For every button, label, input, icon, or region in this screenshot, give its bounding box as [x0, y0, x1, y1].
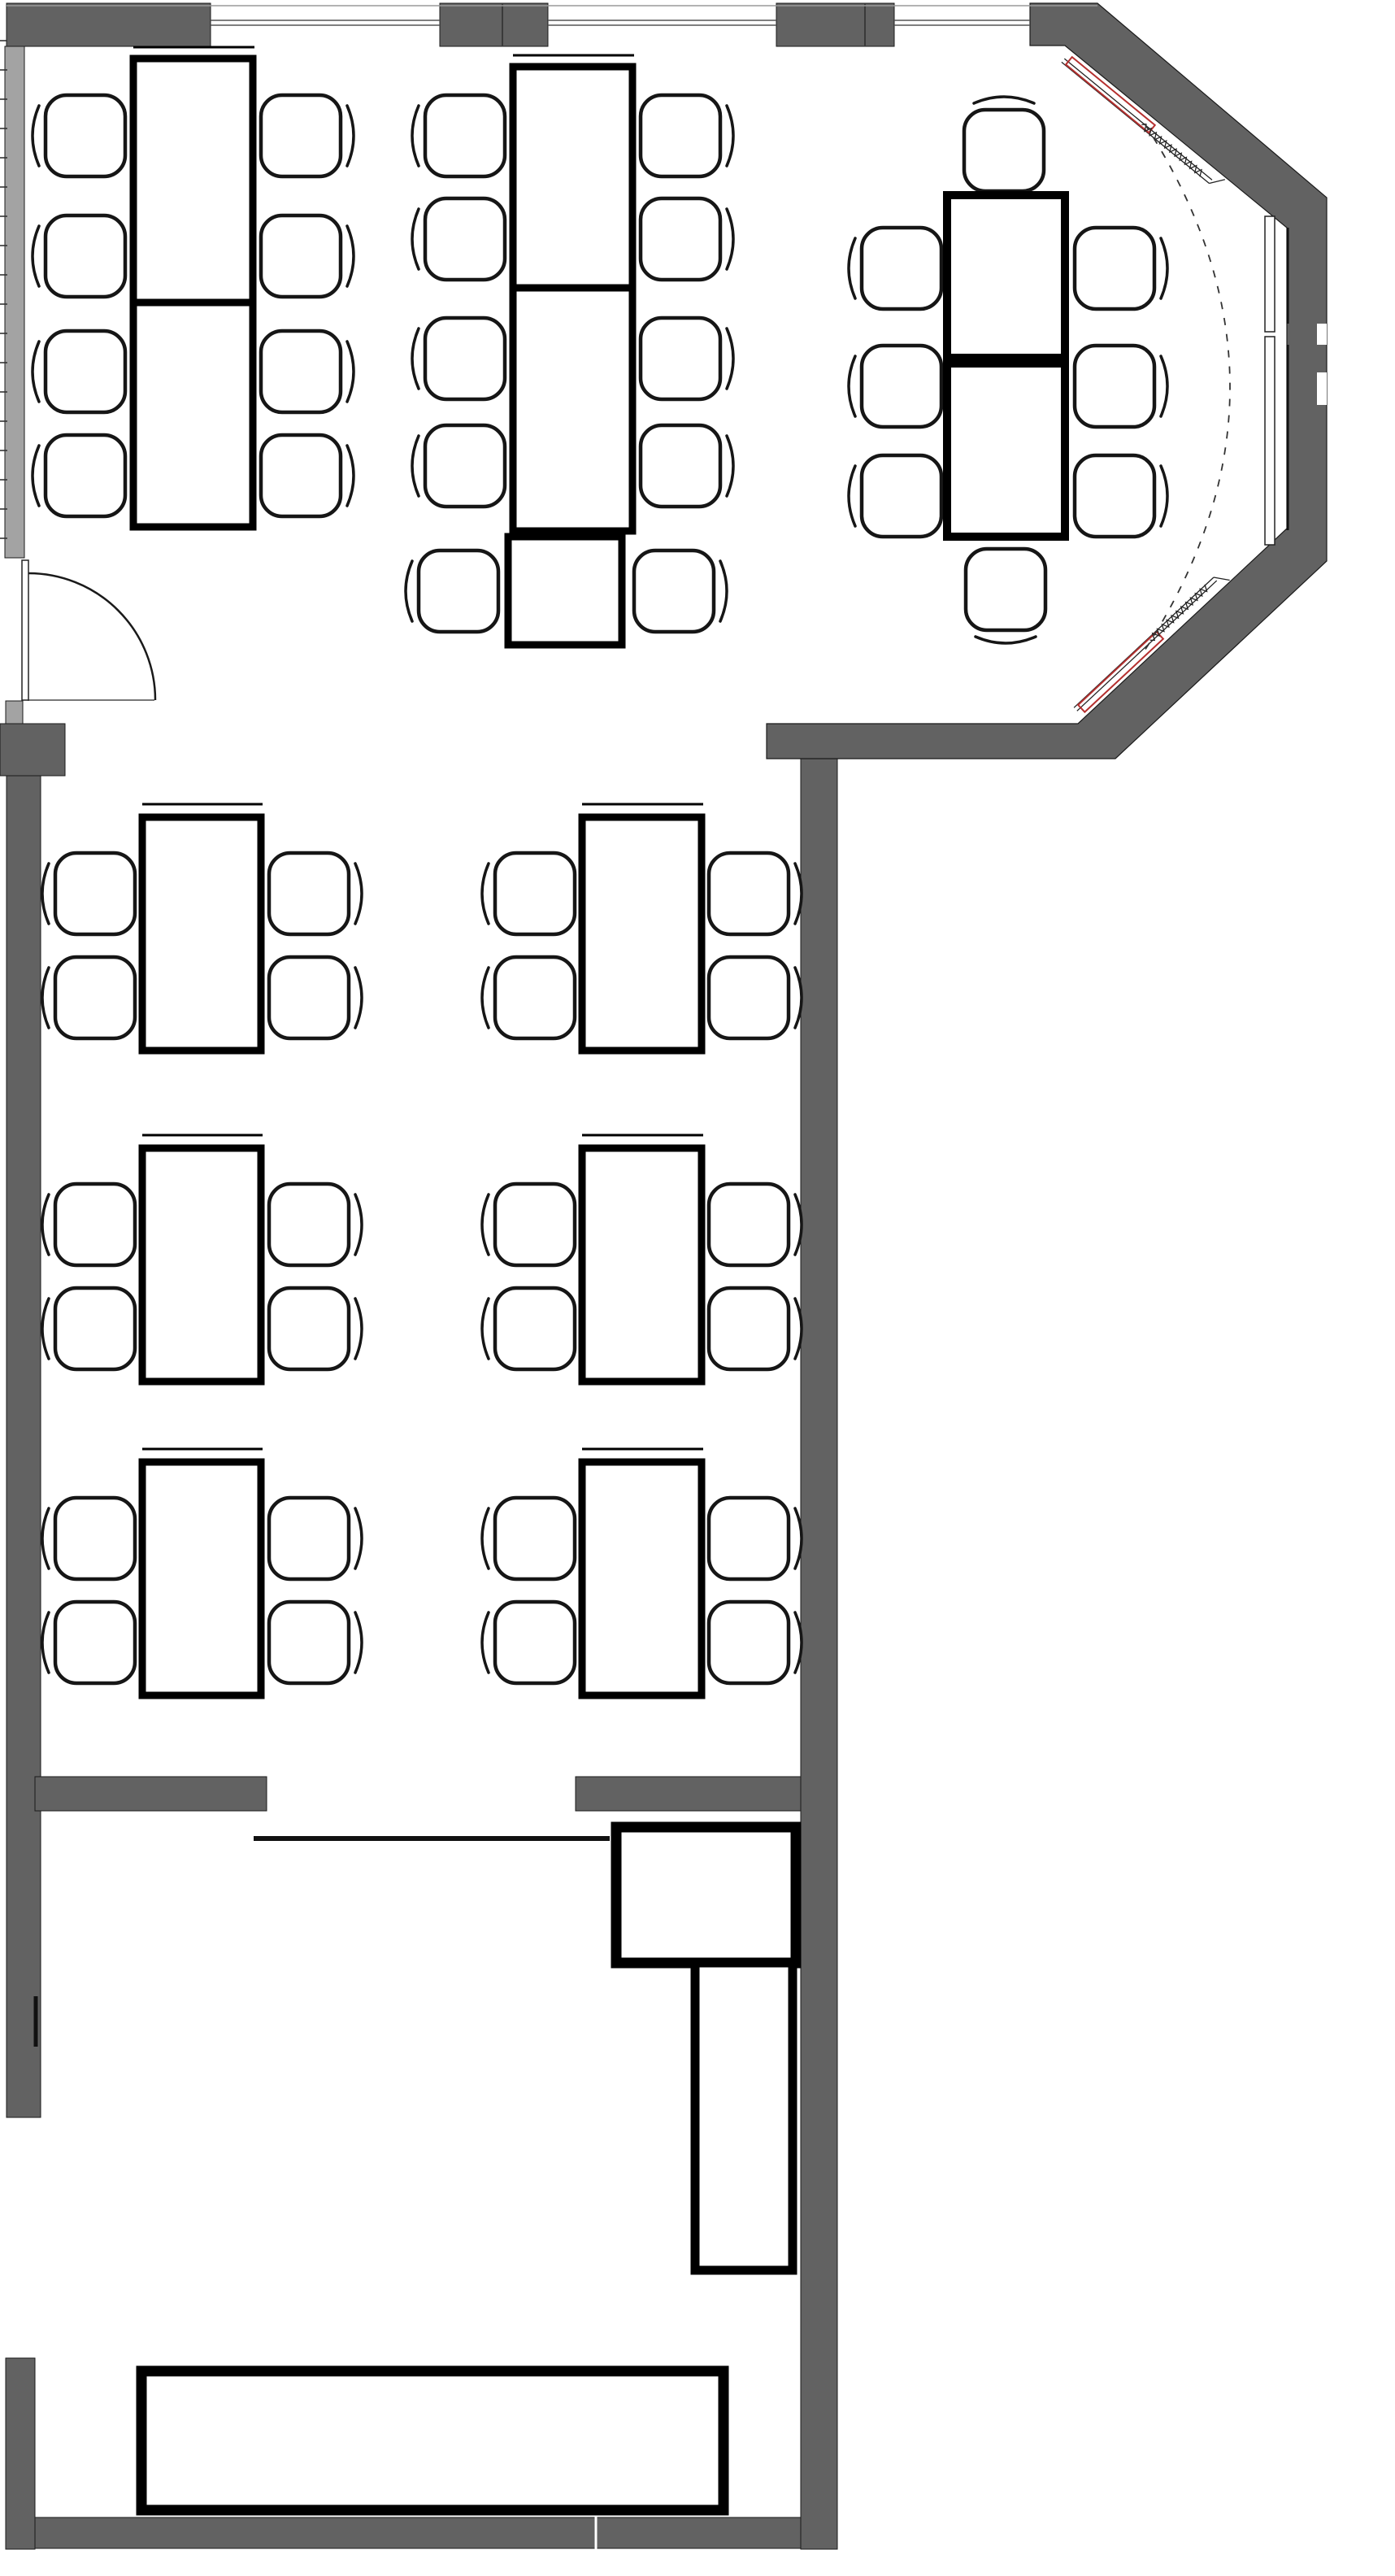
chair-backrest-arc: [406, 561, 412, 621]
wall-segment: [0, 724, 65, 776]
dining-table: [133, 302, 253, 527]
chair: [641, 95, 720, 176]
chair: [634, 550, 714, 632]
chair: [862, 346, 941, 427]
wall-segment: [440, 3, 548, 46]
chair-backrest-arc: [974, 97, 1034, 103]
chair: [261, 435, 341, 516]
chair: [709, 1602, 789, 1683]
curtain-dashed-arc: [1145, 124, 1230, 651]
chair-backrest-arc: [1161, 356, 1167, 416]
chair-backrest-arc: [33, 446, 39, 506]
chair-backrest-arc: [42, 1508, 49, 1569]
chair: [709, 1288, 789, 1369]
chair: [55, 1288, 135, 1369]
chair: [269, 1498, 349, 1579]
dining-table: [582, 1148, 702, 1382]
chair: [964, 110, 1044, 191]
service-counter: [695, 1963, 793, 2270]
chair-backrest-arc: [482, 1612, 489, 1673]
chair-backrest-arc: [42, 1194, 49, 1255]
chair-backrest-arc: [355, 1194, 362, 1255]
chair: [495, 1602, 575, 1683]
chair: [495, 853, 575, 934]
chair-backrest-arc: [482, 1194, 489, 1255]
chair-backrest-arc: [355, 968, 362, 1028]
chair: [269, 1602, 349, 1683]
chair: [495, 957, 575, 1038]
chair: [269, 1288, 349, 1369]
chair-backrest-arc: [347, 226, 354, 286]
chair-backrest-arc: [347, 446, 354, 506]
chair-backrest-arc: [727, 436, 733, 496]
window-sill: [1265, 216, 1275, 332]
chair-backrest-arc: [412, 329, 419, 389]
wall-segment: [7, 776, 41, 2117]
chair: [55, 1602, 135, 1683]
chair-backrest-arc: [412, 436, 419, 496]
chair: [862, 455, 941, 537]
chair: [425, 318, 505, 399]
wall-segment: [35, 2517, 801, 2548]
wall-notch: [1317, 372, 1327, 405]
chair-backrest-arc: [33, 226, 39, 286]
chair-backrest-arc: [482, 968, 489, 1028]
chair-backrest-arc: [849, 356, 855, 416]
chair-backrest-arc: [482, 1299, 489, 1359]
dining-table: [142, 817, 261, 1051]
dining-table: [582, 817, 702, 1051]
chair: [495, 1184, 575, 1265]
chair: [1075, 346, 1154, 427]
wall-segment: [7, 3, 211, 46]
chair-backrest-arc: [412, 106, 419, 166]
chair-backrest-arc: [412, 209, 419, 269]
chair: [261, 95, 341, 176]
wall-segment: [6, 2358, 35, 2549]
wall-notch: [1317, 324, 1327, 345]
chair: [709, 1498, 789, 1579]
chair: [495, 1498, 575, 1579]
chair: [46, 215, 125, 297]
window-frame-end-tick: [1209, 173, 1224, 189]
chair: [269, 957, 349, 1038]
chair: [425, 95, 505, 176]
chair: [261, 215, 341, 297]
chair: [1075, 455, 1154, 537]
floor-plan-page: [0, 0, 1395, 2576]
chair-backrest-arc: [727, 329, 733, 389]
floor-plan-svg: [0, 0, 1395, 2576]
chair-backrest-arc: [42, 864, 49, 924]
chair-backrest-arc: [727, 209, 733, 269]
service-counter: [616, 1827, 796, 1963]
chair: [55, 1498, 135, 1579]
chair-backrest-arc: [42, 1612, 49, 1673]
chair: [709, 1184, 789, 1265]
chair: [425, 425, 505, 507]
chair: [641, 318, 720, 399]
chair: [55, 957, 135, 1038]
chair: [261, 331, 341, 412]
wall-segment: [6, 701, 23, 724]
chair: [55, 1184, 135, 1265]
chair-backrest-arc: [33, 342, 39, 402]
chair: [1075, 228, 1154, 309]
chair-backrest-arc: [1161, 466, 1167, 526]
dining-table: [513, 67, 632, 288]
chair-backrest-arc: [355, 1508, 362, 1569]
dining-table: [133, 59, 253, 302]
door-leaf: [22, 560, 28, 700]
dining-table: [142, 1148, 261, 1382]
chair-backrest-arc: [355, 1612, 362, 1673]
dining-table: [947, 363, 1065, 537]
chair: [709, 853, 789, 934]
chair-backrest-arc: [42, 1299, 49, 1359]
chair-backrest-arc: [849, 466, 855, 526]
chair: [425, 198, 505, 280]
chair: [55, 853, 135, 934]
chair-backrest-arc: [355, 1299, 362, 1359]
chair-backrest-arc: [849, 238, 855, 298]
chair: [709, 957, 789, 1038]
chair-backrest-arc: [347, 342, 354, 402]
chair-backrest-arc: [33, 106, 39, 166]
chair: [269, 853, 349, 934]
wall-segment: [5, 46, 24, 558]
chair-backrest-arc: [355, 864, 362, 924]
wall-segment: [776, 3, 894, 46]
chair: [269, 1184, 349, 1265]
chair-backrest-arc: [482, 1508, 489, 1569]
door-swing-arc: [28, 573, 155, 700]
chair-backrest-arc: [976, 637, 1036, 643]
chair-backrest-arc: [42, 968, 49, 1028]
dining-table: [582, 1462, 702, 1695]
chair: [46, 331, 125, 412]
chair-backrest-arc: [1161, 238, 1167, 298]
wall-segment: [35, 1777, 267, 1811]
dining-table: [947, 195, 1065, 358]
chair-backrest-arc: [727, 106, 733, 166]
wall-segment: [576, 1777, 806, 1811]
chair: [419, 550, 498, 632]
chair: [862, 228, 941, 309]
chair-backrest-arc: [720, 561, 727, 621]
dining-table: [142, 1462, 261, 1695]
wall-segment: [801, 724, 837, 2549]
chair: [966, 549, 1045, 630]
chair: [641, 425, 720, 507]
chair: [46, 435, 125, 516]
bar-table: [141, 2371, 724, 2510]
window-sill: [1265, 337, 1275, 545]
chair-backrest-arc: [347, 106, 354, 166]
dining-table: [508, 537, 622, 645]
dining-table: [513, 288, 632, 531]
chair: [46, 95, 125, 176]
chair: [641, 198, 720, 280]
chair: [495, 1288, 575, 1369]
chair-backrest-arc: [482, 864, 489, 924]
